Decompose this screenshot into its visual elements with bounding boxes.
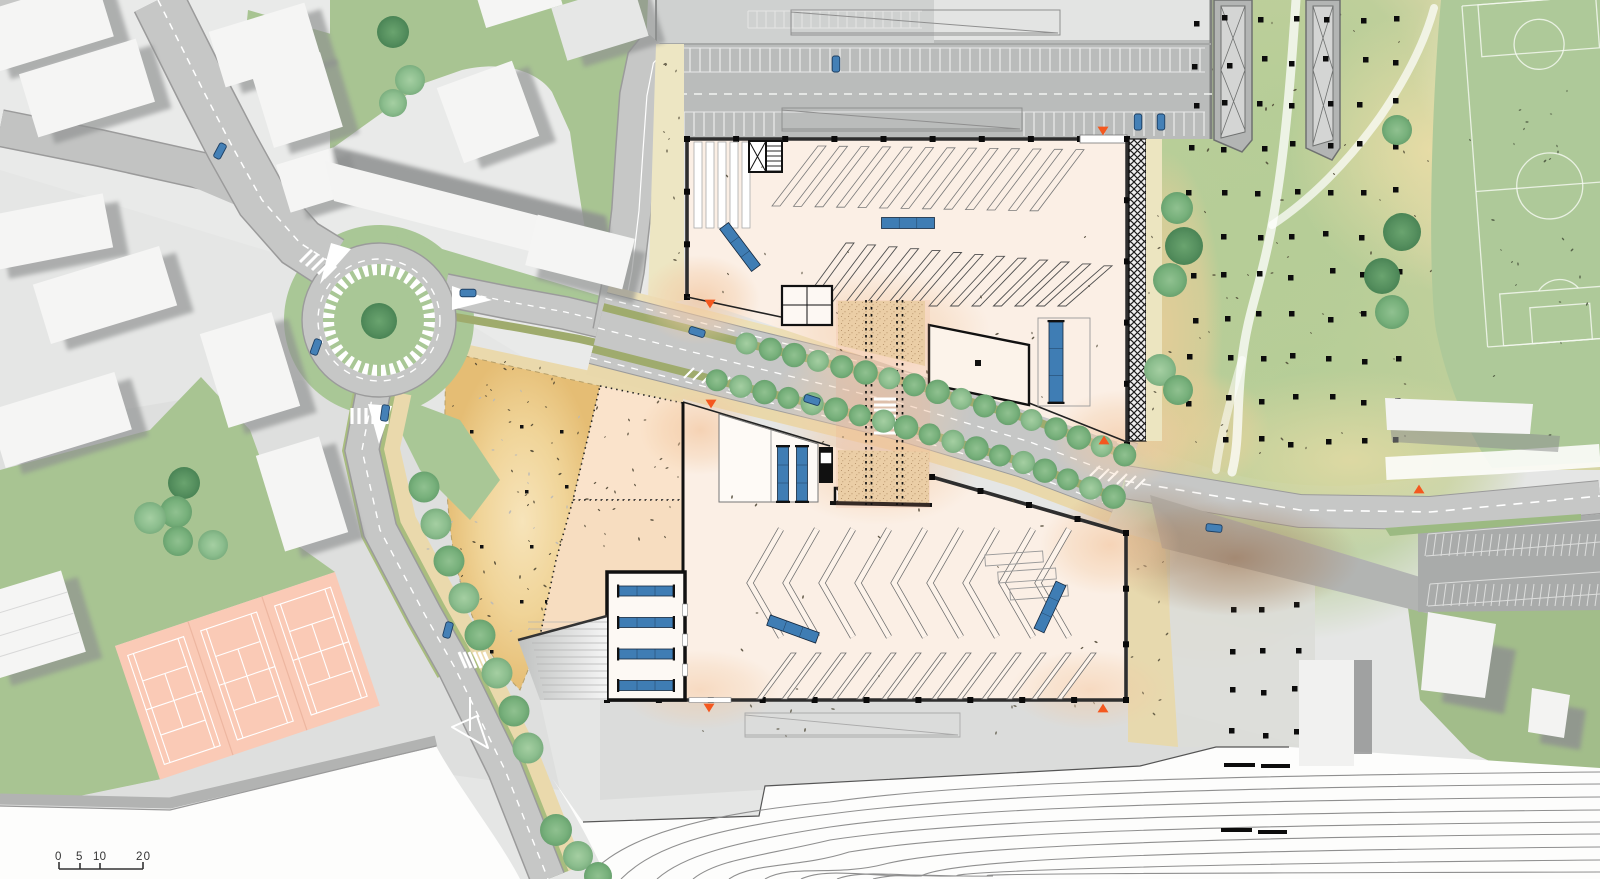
svg-text:10: 10 [93, 851, 106, 863]
svg-text:5: 5 [76, 851, 82, 863]
svg-text:0: 0 [55, 851, 61, 863]
svg-text:20: 20 [136, 851, 150, 863]
